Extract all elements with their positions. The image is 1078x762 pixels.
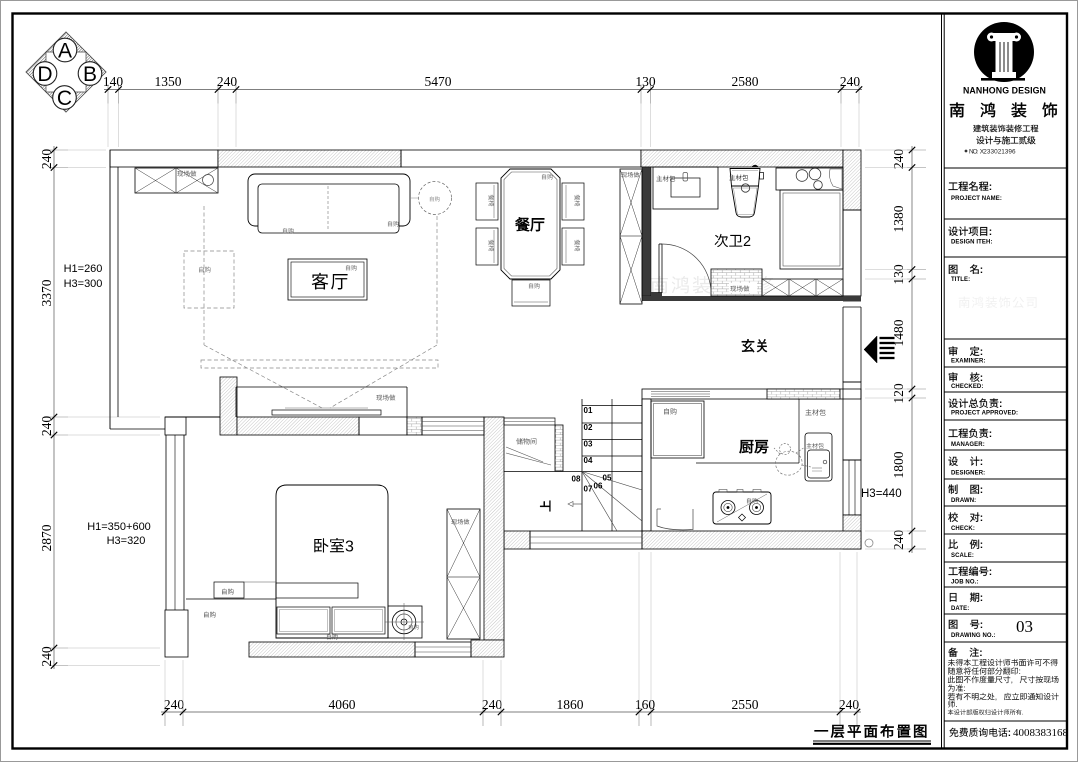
- svg-text:EXAMINER:: EXAMINER:: [951, 359, 986, 365]
- svg-text:2580: 2580: [732, 74, 759, 89]
- svg-text:.: .: [1022, 710, 1024, 717]
- svg-text:240: 240: [891, 149, 906, 170]
- svg-text:D: D: [37, 63, 52, 86]
- svg-text::: :: [999, 399, 1002, 410]
- svg-text:130: 130: [635, 74, 656, 89]
- svg-text:MANAGER:: MANAGER:: [951, 442, 985, 448]
- svg-text:4060: 4060: [329, 697, 356, 712]
- svg-text:H3=320: H3=320: [107, 535, 146, 547]
- svg-text:3: 3: [345, 539, 354, 556]
- svg-text::: :: [989, 227, 992, 238]
- svg-text:01: 01: [584, 406, 593, 415]
- svg-text:H1=350+600: H1=350+600: [87, 521, 151, 533]
- svg-text:DRAWING NO.:: DRAWING NO.:: [951, 633, 996, 639]
- svg-text:240: 240: [39, 416, 54, 437]
- svg-text::: :: [980, 457, 983, 468]
- svg-text:SCALE:: SCALE:: [951, 553, 974, 559]
- svg-text::: :: [989, 182, 992, 193]
- svg-text:6: 6: [1012, 149, 1016, 156]
- svg-text:PROJECT APPROVED:: PROJECT APPROVED:: [951, 411, 1018, 417]
- svg-text::: :: [980, 513, 983, 524]
- svg-text::: :: [1008, 728, 1011, 739]
- svg-text:130: 130: [891, 264, 906, 285]
- svg-text::: :: [1019, 667, 1021, 676]
- svg-text:1800: 1800: [891, 451, 906, 478]
- svg-text:2: 2: [743, 234, 751, 250]
- svg-text:08: 08: [572, 475, 581, 484]
- svg-text::: :: [989, 429, 992, 440]
- svg-text::: :: [980, 373, 983, 384]
- svg-text::: :: [963, 684, 965, 693]
- svg-text:240: 240: [839, 697, 860, 712]
- svg-text:4008383168: 4008383168: [1013, 727, 1069, 739]
- svg-text:CHECKED:: CHECKED:: [951, 384, 983, 390]
- svg-text:NANHONG DESIGN: NANHONG DESIGN: [963, 86, 1046, 96]
- svg-text:03: 03: [1016, 617, 1033, 636]
- svg-text::: :: [980, 265, 983, 276]
- svg-text:TITLE:: TITLE:: [951, 277, 970, 283]
- svg-text::: :: [979, 648, 982, 659]
- svg-text:,: ,: [1011, 676, 1013, 685]
- svg-text::: :: [980, 540, 983, 551]
- svg-text:CHECK:: CHECK:: [951, 526, 975, 532]
- svg-text:240: 240: [840, 74, 861, 89]
- svg-text:06: 06: [594, 482, 603, 491]
- svg-text::: :: [989, 567, 992, 578]
- svg-text:240: 240: [482, 697, 503, 712]
- svg-text:H1=260: H1=260: [64, 263, 103, 275]
- svg-text:3370: 3370: [39, 279, 54, 306]
- svg-text:1860: 1860: [557, 697, 584, 712]
- svg-text:2870: 2870: [39, 524, 54, 551]
- svg-text::: :: [976, 149, 978, 156]
- svg-text:DESIGN ITEH:: DESIGN ITEH:: [951, 240, 993, 246]
- svg-text:02: 02: [584, 423, 593, 432]
- svg-text:03: 03: [584, 440, 593, 449]
- svg-text:JOB NO.:: JOB NO.:: [951, 580, 978, 586]
- svg-text::: :: [980, 620, 983, 631]
- svg-text:H3=300: H3=300: [64, 278, 103, 290]
- svg-text:240: 240: [891, 530, 906, 551]
- svg-text:07: 07: [584, 485, 593, 494]
- svg-text:C: C: [57, 87, 72, 110]
- svg-text:160: 160: [635, 697, 656, 712]
- svg-text:H3=440: H3=440: [861, 488, 902, 500]
- svg-text::: :: [980, 485, 983, 496]
- svg-text:05: 05: [603, 474, 612, 483]
- svg-text:5470: 5470: [425, 74, 452, 89]
- svg-text:240: 240: [39, 149, 54, 170]
- svg-text:A: A: [58, 40, 72, 63]
- svg-text:1350: 1350: [155, 74, 182, 89]
- svg-text:240: 240: [39, 646, 54, 667]
- svg-text:B: B: [83, 63, 97, 86]
- svg-text:DATE:: DATE:: [951, 606, 969, 612]
- svg-text:2550: 2550: [732, 697, 759, 712]
- svg-text:04: 04: [584, 456, 593, 465]
- svg-text:140: 140: [103, 74, 124, 89]
- svg-text:1380: 1380: [891, 205, 906, 232]
- svg-text:120: 120: [891, 383, 906, 404]
- svg-text:240: 240: [217, 74, 238, 89]
- svg-text::: :: [980, 593, 983, 604]
- svg-text:.: .: [955, 700, 957, 709]
- svg-text:,: ,: [995, 693, 997, 702]
- svg-text:DRAWN:: DRAWN:: [951, 498, 976, 504]
- svg-text:240: 240: [164, 697, 185, 712]
- svg-text:PROJECT NAME:: PROJECT NAME:: [951, 196, 1002, 202]
- svg-text::: :: [980, 347, 983, 358]
- svg-text:DESIGNER:: DESIGNER:: [951, 471, 985, 477]
